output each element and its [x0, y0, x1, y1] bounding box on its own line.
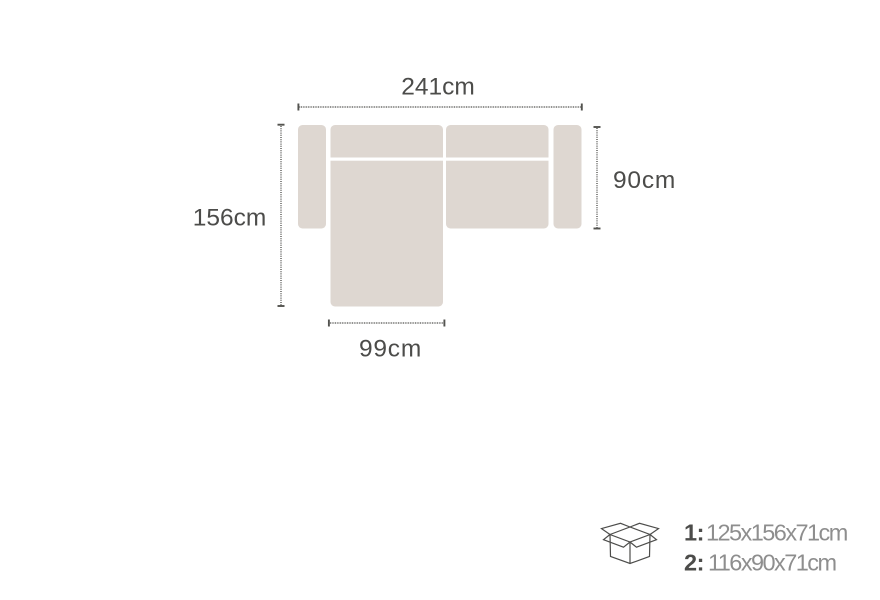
svg-text:99cm: 99cm [359, 336, 422, 363]
svg-text:125x156x71cm: 125x156x71cm [706, 520, 848, 546]
svg-text:156cm: 156cm [193, 205, 267, 232]
svg-text:90cm: 90cm [613, 167, 676, 194]
svg-text:1:: 1: [684, 520, 704, 546]
svg-text:2:: 2: [684, 550, 704, 576]
svg-text:116x90x71cm: 116x90x71cm [708, 550, 836, 576]
svg-text:241cm: 241cm [401, 74, 475, 101]
